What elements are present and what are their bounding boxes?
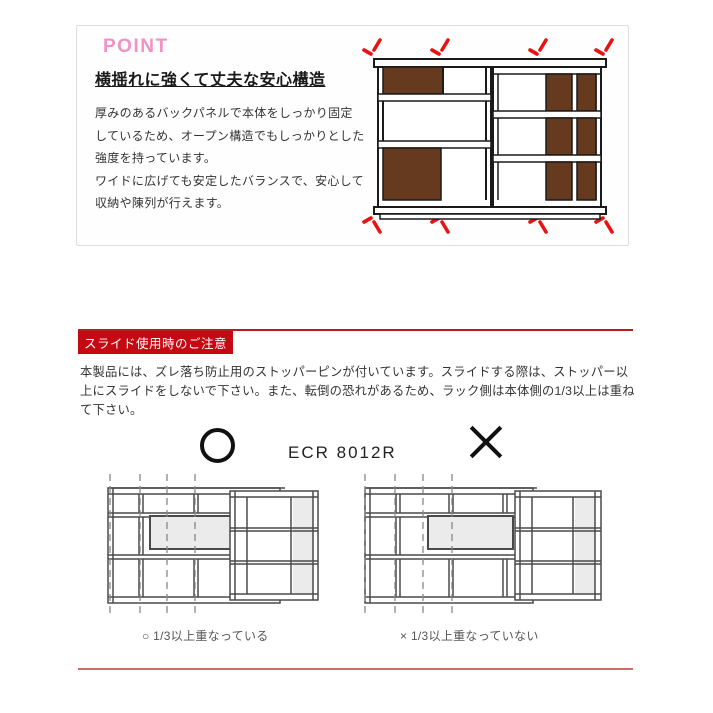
- shake-mark-icon: [364, 218, 380, 232]
- shake-mark-icon: [530, 218, 546, 232]
- diagram-correct-overlap: [95, 466, 345, 624]
- incorrect-diagram-caption: × 1/3以上重なっていない: [400, 627, 539, 644]
- cabinet-illustration: [356, 31, 616, 239]
- ok-circle-symbol: [200, 428, 235, 463]
- bottom-divider-line: [78, 668, 633, 670]
- wood-panel: [546, 118, 572, 155]
- shake-mark-icon: [596, 218, 612, 232]
- wood-panel: [577, 74, 596, 111]
- diagram-incorrect-overlap: [352, 466, 620, 624]
- rack-gray-column: [293, 497, 313, 594]
- diagram-rack: [515, 491, 601, 600]
- model-number-label: ECR 8012R: [288, 443, 397, 463]
- point-body-line: 強度を持っています。: [95, 147, 365, 170]
- sliding-shelf: [150, 516, 232, 549]
- ng-cross-symbol: [468, 424, 504, 460]
- wood-panel: [546, 74, 572, 111]
- caution-paragraph: 本製品には、ズレ落ち防止用のストッパーピンが付いています。スライドする際は、スト…: [80, 363, 638, 420]
- point-body-line: 収納や陳列が行えます。: [95, 192, 365, 215]
- point-label: POINT: [103, 36, 169, 58]
- sliding-shelf: [428, 516, 513, 549]
- shake-mark-icon: [432, 40, 448, 54]
- point-body-line: ワイドに広げても安定したバランスで、安心して: [95, 170, 365, 193]
- wood-panel: [383, 67, 443, 94]
- cabinet-body: [374, 59, 606, 219]
- wood-panel: [383, 148, 441, 200]
- point-section-box: POINT 横揺れに強くて丈夫な安心構造 厚みのあるバックパネルで本体をしっかり…: [76, 25, 629, 246]
- shake-mark-icon: [364, 40, 380, 54]
- rack-gray-column: [575, 497, 595, 594]
- diagram-rack: [230, 491, 318, 600]
- wood-panel: [577, 118, 596, 155]
- shake-mark-icon: [530, 40, 546, 54]
- wood-panel: [577, 162, 596, 200]
- diagram-body: [365, 488, 537, 603]
- point-body-line: しているため、オープン構造でもしっかりとした: [95, 125, 365, 148]
- shake-mark-icon: [596, 40, 612, 54]
- point-body-text: 厚みのあるバックパネルで本体をしっかり固定 しているため、オープン構造でもしっか…: [95, 102, 365, 215]
- product-description-page: POINT 横揺れに強くて丈夫な安心構造 厚みのあるバックパネルで本体をしっかり…: [0, 0, 713, 713]
- correct-diagram-caption: ○ 1/3以上重なっている: [142, 627, 269, 644]
- wood-panel: [546, 162, 572, 200]
- point-body-line: 厚みのあるバックパネルで本体をしっかり固定: [95, 102, 365, 125]
- caution-section-title: スライド使用時のご注意: [78, 331, 233, 354]
- shake-mark-icon: [432, 218, 448, 232]
- point-heading: 横揺れに強くて丈夫な安心構造: [95, 66, 326, 90]
